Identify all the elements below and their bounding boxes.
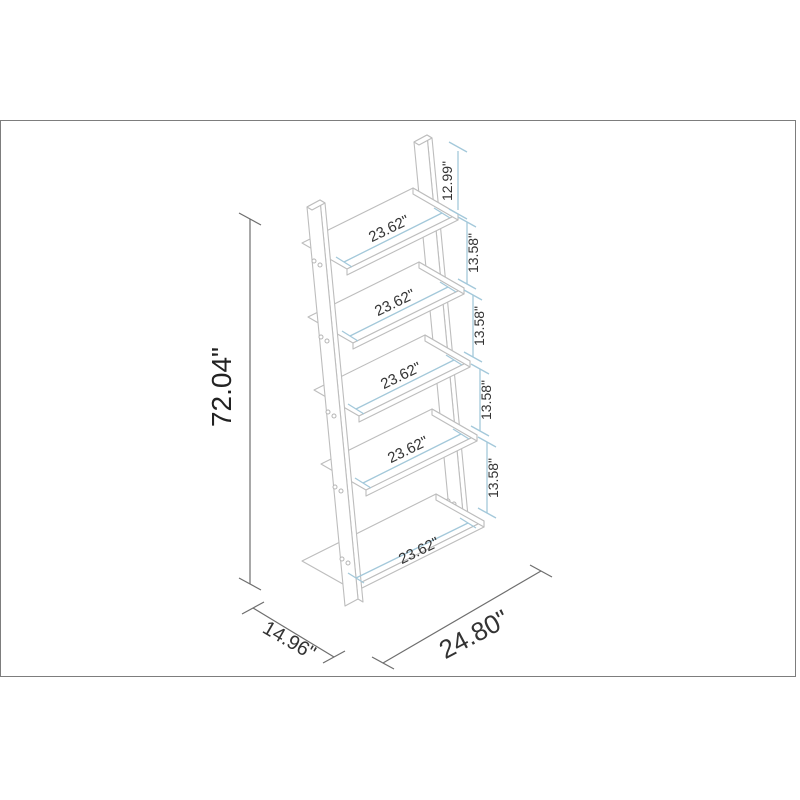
dim-overall-height — [239, 213, 261, 590]
dim-shelf-gap-2-label: 13.58" — [471, 306, 487, 346]
diagram-frame: 72.04" 12.99" 13.58" 13.58" 13.58" 13.58… — [0, 120, 796, 677]
dim-overall-height-label: 72.04" — [206, 347, 237, 427]
dimension-diagram: 72.04" 12.99" 13.58" 13.58" 13.58" 13.58… — [1, 121, 795, 676]
dim-shelf-gap-3-label: 13.58" — [478, 380, 494, 420]
dim-shelf-gap-4-label: 13.58" — [485, 458, 501, 498]
page-background: 72.04" 12.99" 13.58" 13.58" 13.58" 13.58… — [0, 0, 800, 800]
dim-top-post-height-label: 12.99" — [439, 161, 455, 201]
shelf-5 — [302, 494, 484, 594]
dim-base-width-label: 24.80" — [434, 603, 514, 664]
dim-shelf-gap-1-label: 13.58" — [465, 233, 481, 273]
dim-base-depth-label: 14.96" — [259, 617, 319, 665]
